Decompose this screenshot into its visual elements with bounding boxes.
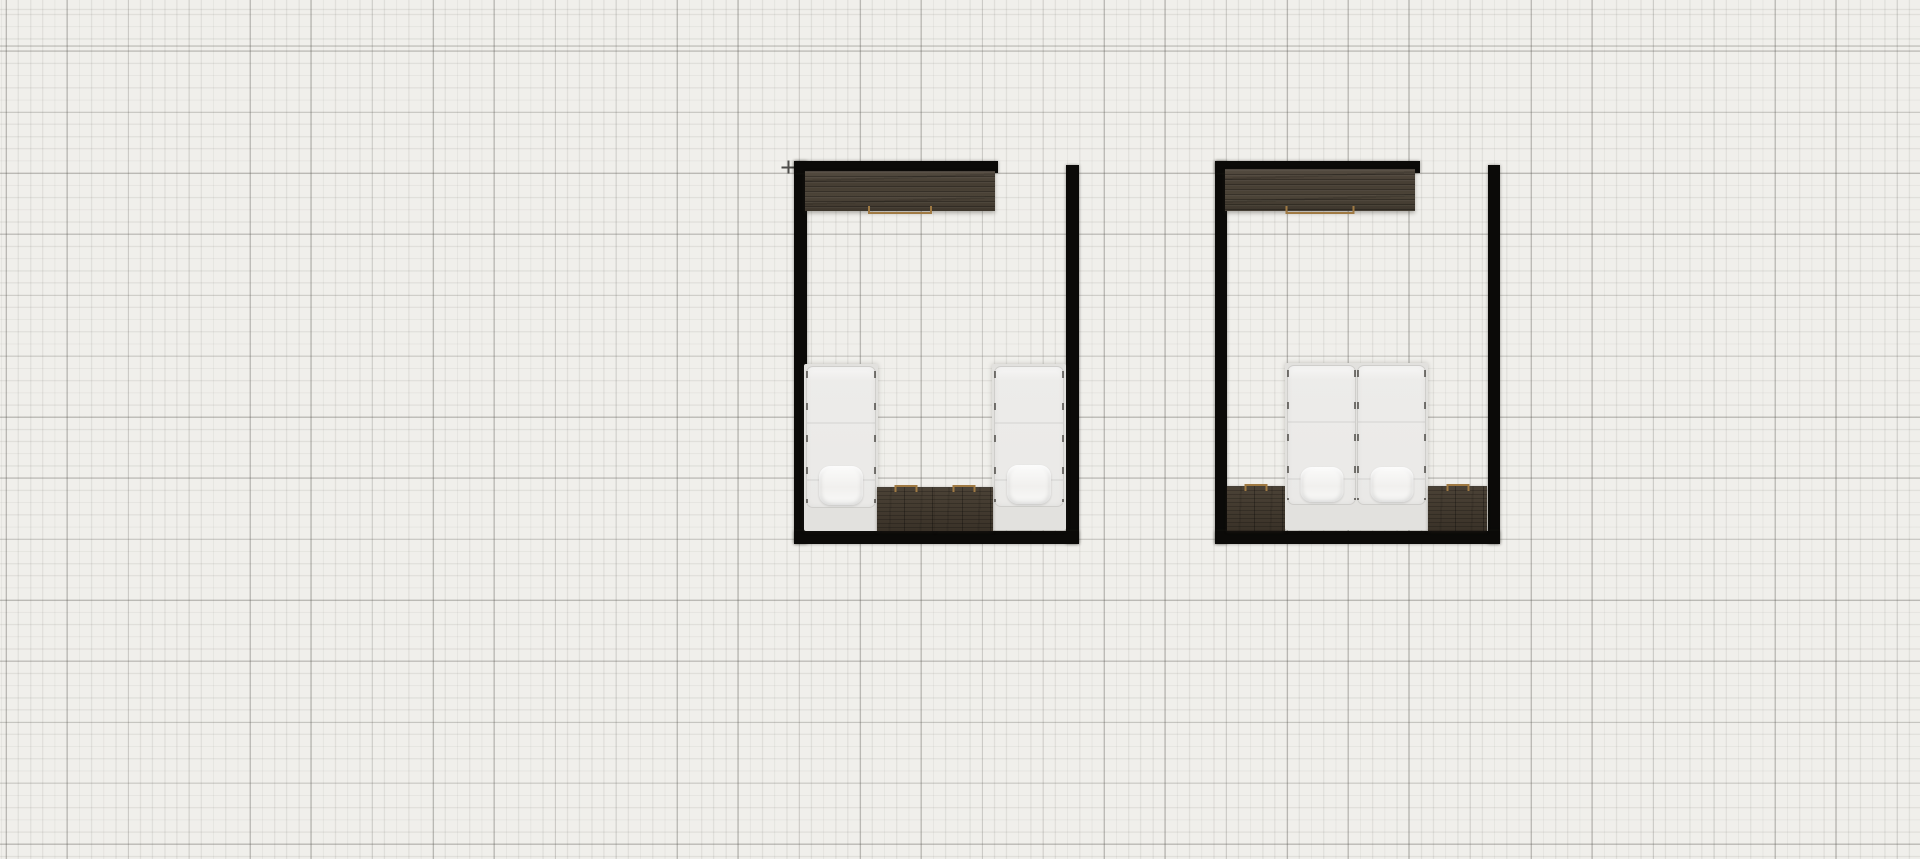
nightstand[interactable] (1428, 486, 1487, 531)
wall-left[interactable] (1215, 161, 1227, 544)
drawer-handle-icon (895, 485, 918, 492)
mattress (994, 366, 1064, 507)
crosshair-icon (782, 161, 795, 174)
drawer-handle-icon (1446, 484, 1469, 491)
nightstand[interactable] (935, 487, 993, 531)
drawer-handle-icon (953, 485, 976, 492)
wardrobe[interactable] (1225, 169, 1415, 211)
wall-bottom[interactable] (1215, 531, 1500, 544)
drawer-handle-icon (1245, 484, 1268, 491)
pillow (1007, 465, 1051, 504)
single-bed[interactable] (992, 364, 1066, 530)
app-body: { "app": { "view": "floor-plan-canvas", … (0, 0, 1920, 859)
floorplan-canvas[interactable] (0, 0, 1920, 859)
pillow (1370, 467, 1413, 502)
single-bed[interactable] (804, 364, 878, 531)
mattress (1287, 365, 1356, 505)
nightstand[interactable] (877, 487, 935, 531)
wall-right[interactable] (1066, 165, 1079, 544)
double-bed[interactable] (1285, 363, 1428, 530)
wardrobe[interactable] (805, 171, 995, 211)
pillow (819, 466, 863, 505)
wardrobe-handle (1286, 206, 1355, 214)
mattress (806, 366, 876, 508)
wall-bottom[interactable] (794, 531, 1079, 544)
pillow (1300, 467, 1343, 502)
wardrobe-handle (868, 206, 932, 214)
nightstand[interactable] (1227, 486, 1285, 531)
mattress (1357, 365, 1426, 505)
wall-right[interactable] (1488, 165, 1500, 544)
